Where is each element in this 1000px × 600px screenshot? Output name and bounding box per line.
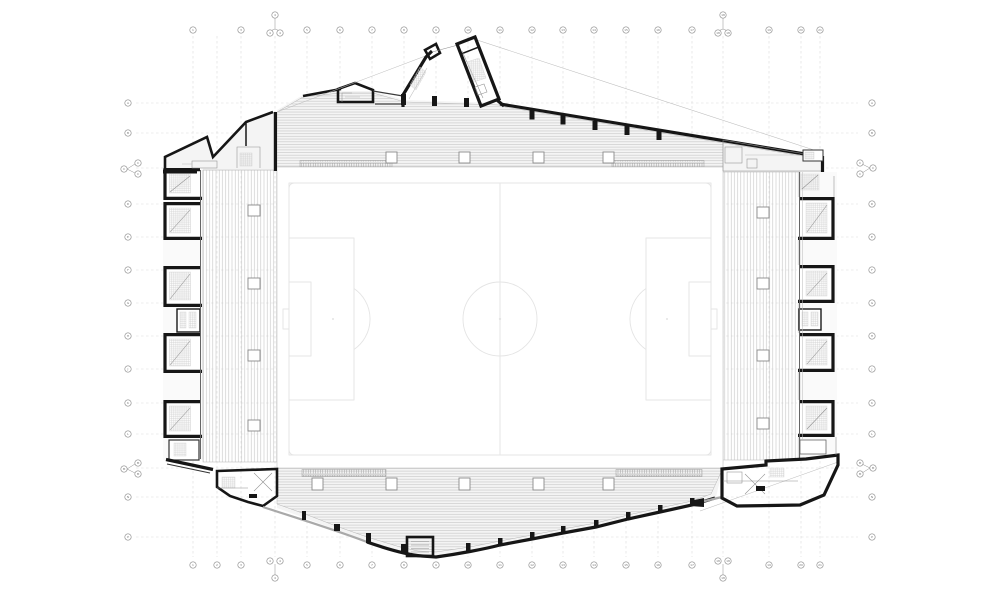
grid-bubble-label: 5 bbox=[306, 28, 308, 32]
vomitory bbox=[533, 152, 544, 163]
grid-bubble-label: 4 bbox=[269, 31, 271, 35]
bubble-stem bbox=[127, 464, 135, 473]
vomitory bbox=[312, 478, 323, 490]
grid-bubble-label: 12 bbox=[530, 28, 534, 32]
centre-spot bbox=[499, 318, 501, 320]
grid-bubble-label: F bbox=[871, 268, 873, 272]
grid-bubble-label: 18 bbox=[721, 13, 725, 17]
west-stair-core bbox=[163, 202, 202, 240]
grid-bubble-label: 20 bbox=[799, 563, 803, 567]
stadium-floor-plan: 1123344444455667788991010111112121313141… bbox=[0, 0, 1000, 600]
south-stand-corner-rows bbox=[616, 470, 702, 477]
bubble-stem bbox=[862, 164, 870, 173]
grid-bubble-label: 14 bbox=[592, 28, 596, 32]
grid-bubble-label: C bbox=[137, 172, 139, 176]
grid-bubble-label: F bbox=[127, 268, 129, 272]
grid-bubble-label: 1 bbox=[192, 563, 194, 567]
vomitory bbox=[533, 478, 544, 490]
grid-bubble-label: H bbox=[871, 334, 873, 338]
penalty-spot-right bbox=[666, 318, 668, 320]
west-stair-core bbox=[163, 333, 202, 373]
grid-bubble-label: C bbox=[859, 161, 861, 165]
grid-bubble-label: E bbox=[871, 235, 873, 239]
grid-bubble-label: M bbox=[137, 472, 140, 476]
bubble-stem bbox=[127, 164, 135, 173]
grid-bubble-label: N bbox=[871, 495, 873, 499]
vomitory bbox=[757, 418, 769, 429]
west-lower-room bbox=[169, 440, 199, 460]
grid-bubble-label: 16 bbox=[656, 563, 660, 567]
vomitory bbox=[248, 420, 260, 431]
grid-bubble-label: 10 bbox=[466, 563, 470, 567]
grid-bubble-label: 8 bbox=[403, 28, 405, 32]
grid-bubble-label: 4 bbox=[279, 31, 281, 35]
vomitory bbox=[386, 478, 397, 490]
grid-bubble-label: 3 bbox=[240, 28, 242, 32]
vomitory bbox=[248, 350, 260, 361]
grid-bubble-label: 21 bbox=[818, 563, 822, 567]
vomitory bbox=[603, 478, 614, 490]
grid-bubble-label: 18 bbox=[716, 31, 720, 35]
vomitory bbox=[248, 278, 260, 289]
north-stand-corner-rows bbox=[300, 161, 392, 168]
stadium-building bbox=[163, 37, 838, 557]
grid-bubble-label: H bbox=[127, 334, 129, 338]
grid-bubble-label: 4 bbox=[279, 559, 281, 563]
core-stair bbox=[806, 339, 827, 365]
west-connector bbox=[177, 309, 200, 332]
south-stand-corner-rows bbox=[302, 470, 386, 477]
grid-bubble-label: 21 bbox=[818, 28, 822, 32]
grid-bubble-label: 1 bbox=[192, 28, 194, 32]
grid-bubble-label: 15 bbox=[624, 563, 628, 567]
grid-bubble-label: 15 bbox=[624, 28, 628, 32]
grid-bubble-label: 16 bbox=[656, 28, 660, 32]
grid-bubble-label: 4 bbox=[274, 576, 276, 580]
grid-bubble-label: M bbox=[872, 466, 875, 470]
grid-bubble-label: C bbox=[872, 166, 874, 170]
grid-bubble-label: 9 bbox=[435, 28, 437, 32]
west-stair-core bbox=[163, 266, 202, 307]
grid-bubble-label: 7 bbox=[371, 563, 373, 567]
grid-bubble-label: 7 bbox=[371, 28, 373, 32]
vomitory bbox=[248, 205, 260, 216]
grid-bubble-label: C bbox=[123, 167, 125, 171]
grid-bubble-label: 4 bbox=[269, 559, 271, 563]
grid-bubble-label: 17 bbox=[690, 28, 694, 32]
grid-bubble-label: 14 bbox=[592, 563, 596, 567]
grid-bubble-label: P bbox=[127, 535, 129, 539]
west-stand bbox=[203, 170, 277, 462]
grid-bubble-label: 13 bbox=[561, 563, 565, 567]
entrance-tower bbox=[403, 37, 504, 107]
grid-bubble-label: 11 bbox=[498, 28, 502, 32]
vomitory bbox=[757, 350, 769, 361]
vomitory bbox=[386, 152, 397, 163]
grid-bubble-label: 10 bbox=[466, 28, 470, 32]
grid-bubble-label: 4 bbox=[274, 13, 276, 17]
plan-svg: 1123344444455667788991010111112121313141… bbox=[0, 0, 1000, 600]
grid-bubble-label: 18 bbox=[716, 559, 720, 563]
grid-bubble-label: 9 bbox=[435, 563, 437, 567]
grid-bubble-label: M bbox=[859, 461, 862, 465]
grid-bubble-label: P bbox=[871, 535, 873, 539]
vomitory bbox=[757, 278, 769, 289]
north-stand-corner-rows bbox=[612, 161, 704, 168]
grid-bubble-label: 3 bbox=[240, 563, 242, 567]
vomitory bbox=[459, 152, 470, 163]
grid-bubble-label: J bbox=[871, 367, 873, 371]
core-stair bbox=[806, 203, 827, 233]
penalty-spot-left bbox=[332, 318, 334, 320]
grid-bubble-label: 13 bbox=[561, 28, 565, 32]
grid-bubble-label: C bbox=[859, 172, 861, 176]
west-stair-core bbox=[163, 400, 202, 438]
grid-bubble-label: C bbox=[137, 161, 139, 165]
grid-bubble-label: 6 bbox=[339, 28, 341, 32]
grid-bubble-label: M bbox=[137, 461, 140, 465]
grid-bubble-label: M bbox=[123, 467, 126, 471]
grid-bubble-label: 19 bbox=[767, 28, 771, 32]
grid-bubble-label: J bbox=[127, 367, 129, 371]
vomitory bbox=[459, 478, 470, 490]
grid-bubble-label: 18 bbox=[721, 576, 725, 580]
grid-bubble-label: M bbox=[859, 472, 862, 476]
grid-bubble-label: 8 bbox=[403, 563, 405, 567]
vomitory bbox=[603, 152, 614, 163]
grid-bubble-label: 19 bbox=[767, 563, 771, 567]
grid-bubble-label: 20 bbox=[799, 28, 803, 32]
grid-bubble-label: 6 bbox=[339, 563, 341, 567]
bubble-stem bbox=[862, 464, 870, 473]
grid-bubble-label: 5 bbox=[306, 563, 308, 567]
east-lower-room bbox=[800, 440, 826, 454]
grid-bubble-label: B bbox=[871, 131, 873, 135]
grid-bubble-label: B bbox=[127, 131, 129, 135]
grid-bubble-label: N bbox=[127, 495, 129, 499]
grid-bubble-label: 18 bbox=[726, 559, 730, 563]
grid-bubble-label: 12 bbox=[530, 563, 534, 567]
grid-bubble-label: 11 bbox=[498, 563, 502, 567]
grid-bubble-label: E bbox=[127, 235, 129, 239]
vomitory bbox=[757, 207, 769, 218]
grid-bubble-label: 17 bbox=[690, 563, 694, 567]
grid-bubble-label: 18 bbox=[726, 31, 730, 35]
grid-bubble-label: 2 bbox=[216, 563, 218, 567]
